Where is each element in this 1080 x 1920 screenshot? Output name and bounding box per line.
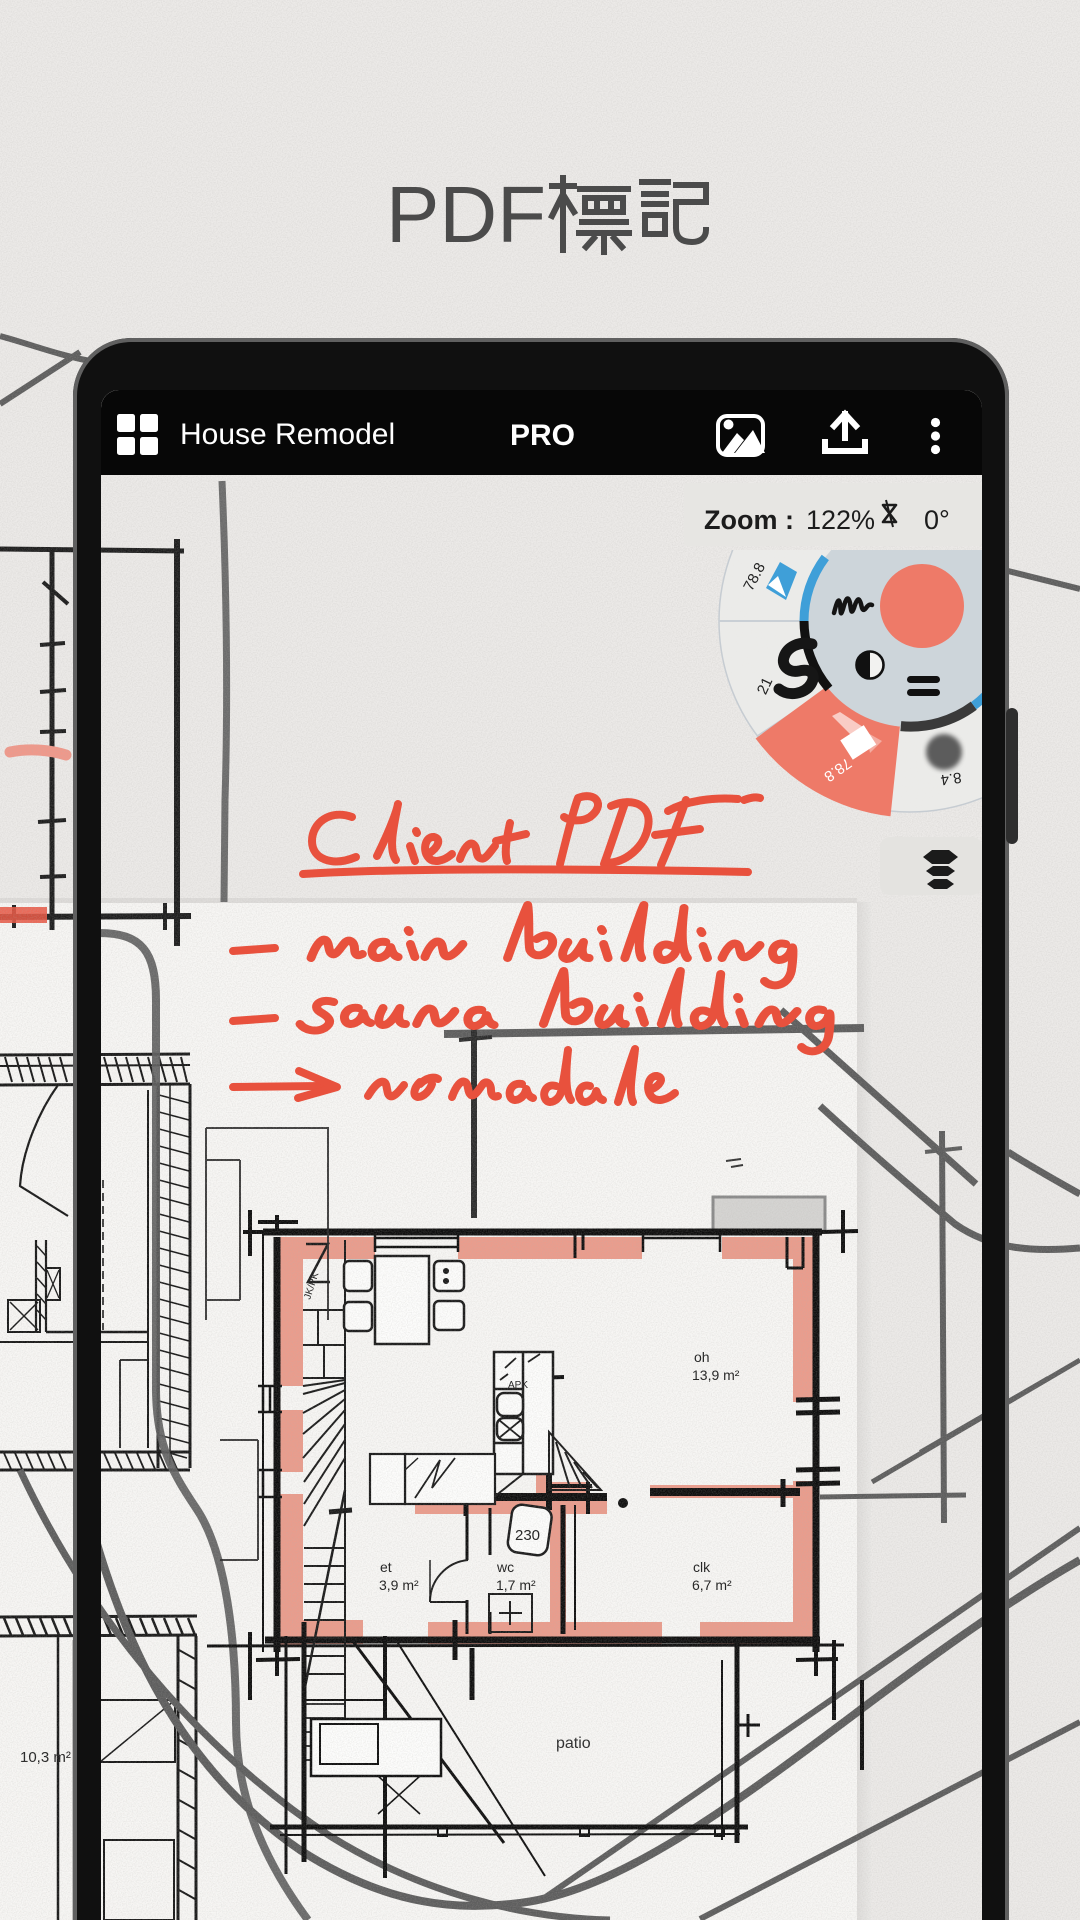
svg-text:PRO: PRO xyxy=(510,419,575,452)
svg-text:122%: 122% xyxy=(806,505,875,535)
svg-text:0°: 0° xyxy=(924,505,950,535)
svg-text:House Remodel: House Remodel xyxy=(180,418,395,451)
svg-text:Zoom :: Zoom : xyxy=(704,505,794,535)
svg-text:8.4: 8.4 xyxy=(940,768,963,788)
svg-text:PDF: PDF xyxy=(386,170,546,259)
